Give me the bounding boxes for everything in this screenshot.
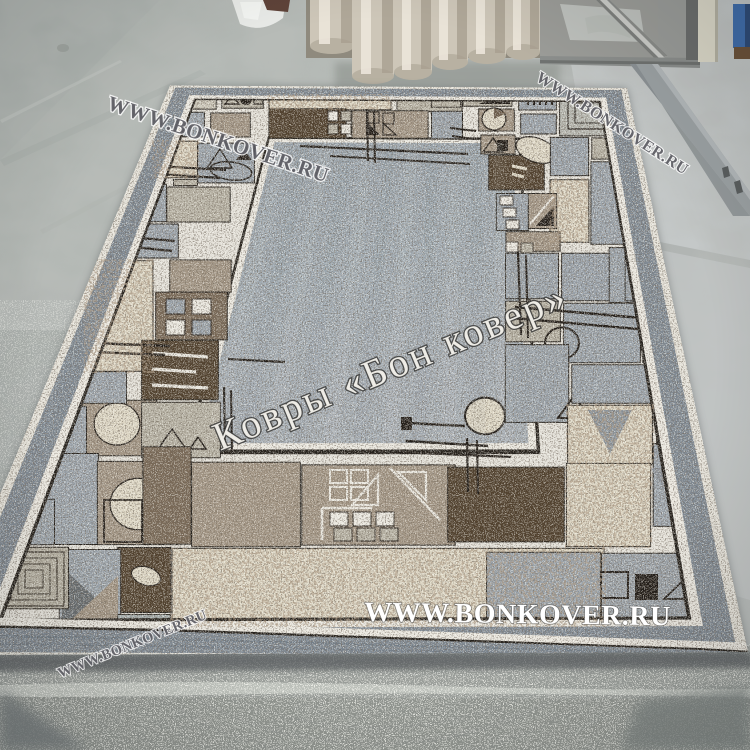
svg-text:WWW.BONKOVER.RU: WWW.BONKOVER.RU bbox=[364, 597, 671, 632]
